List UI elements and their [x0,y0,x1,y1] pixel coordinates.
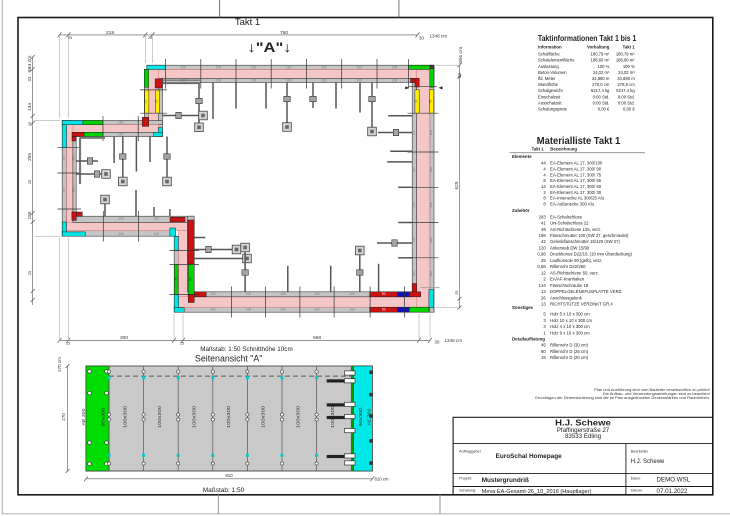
svg-text:EA-Element AL 17, 300/100: EA-Element AL 17, 300/100 [550,161,603,166]
svg-text:41: 41 [541,221,546,226]
svg-text:75: 75 [144,100,148,104]
svg-text:810: 810 [225,473,233,478]
svg-text:30: 30 [435,339,440,344]
svg-text:100: 100 [411,202,415,208]
svg-text:07.01.2022: 07.01.2022 [657,488,689,495]
svg-text:100: 100 [411,237,415,243]
svg-text:Projekt:: Projekt: [459,476,472,480]
svg-text:Zubehör: Zubehör [512,208,530,213]
svg-text:100: 100 [392,78,398,82]
svg-text:100: 100 [210,292,216,296]
svg-text:100x300: 100x300 [295,405,300,428]
svg-text:Grundlagen der Dimensionierung: Grundlagen der Dimensionierung sind die … [535,395,710,400]
svg-text:188,60 m²: 188,60 m² [616,58,635,63]
svg-text:Information: Information [538,44,562,49]
svg-text:100: 100 [251,65,257,69]
svg-text:100: 100 [286,78,292,82]
svg-text:75: 75 [414,100,418,104]
svg-text:100x300: 100x300 [192,405,197,428]
svg-text:33: 33 [457,73,462,78]
svg-text:Taktinformationen Takt 1 bis: Taktinformationen Takt 1 bis 1 [538,34,637,43]
svg-text:Datum:: Datum: [631,489,643,493]
svg-text:90x300: 90x300 [358,407,363,427]
svg-text:Holz 10 x 10 x 300 cm: Holz 10 x 10 x 300 cm [550,318,593,323]
svg-text:Maßstab: 1:50 Schnitthöhe 10: Maßstab: 1:50 Schnitthöhe 10cm [200,346,292,353]
svg-text:Schalgewicht: Schalgewicht [538,88,564,93]
svg-text:100: 100 [314,308,320,312]
svg-text:Meva EA-Gesamt-26_10_2016 (Hau: Meva EA-Gesamt-26_10_2016 (Hauptlager) [482,489,592,495]
svg-text:20: 20 [148,36,152,40]
svg-text:100: 100 [349,308,355,312]
svg-text:100: 100 [314,292,320,296]
svg-text:Anschlussgelenk: Anschlussgelenk [550,295,583,300]
svg-text:Rillenrohr D (30 cm): Rillenrohr D (30 cm) [550,343,589,348]
svg-text:50: 50 [188,277,192,281]
svg-text:Ausschalzeit: Ausschalzeit [538,100,562,105]
svg-text:Flanschschraube 18: Flanschschraube 18 [550,283,589,288]
svg-text:188,60 m²: 188,60 m² [591,58,610,63]
svg-text:0:00 Std.: 0:00 Std. [618,100,635,105]
svg-text:Materialliste Takt 1: Materialliste Takt 1 [537,136,621,147]
svg-text:Mustergrundriß: Mustergrundriß [482,477,529,484]
svg-text:DEMO.WSL: DEMO.WSL [657,477,691,484]
svg-text:Rillenrohr D (25 cm): Rillenrohr D (25 cm) [550,349,589,354]
svg-text:50: 50 [382,308,386,312]
svg-text:EA-Element AL 17, 300/ 50: EA-Element AL 17, 300/ 50 [550,184,602,189]
svg-text:30: 30 [419,36,424,41]
svg-text:EA/AF-Kranhaken: EA/AF-Kranhaken [550,277,585,282]
svg-text:25: 25 [180,342,184,346]
svg-text:100: 100 [118,232,124,236]
svg-text:0,66: 0,66 [537,264,546,269]
svg-text:5217,4 kg: 5217,4 kg [616,88,635,93]
svg-text:684 cm: 684 cm [458,47,464,64]
svg-text:25: 25 [28,180,32,184]
svg-text:180,79 m²: 180,79 m² [591,52,610,57]
svg-text:300: 300 [120,335,128,341]
svg-text:100x300: 100x300 [261,405,266,428]
svg-text:Vorhaltung: Vorhaltung [587,44,610,49]
svg-text:EA-Innenecke AL 300/25 Alu: EA-Innenecke AL 300/25 Alu [550,196,605,201]
svg-text:134: 134 [539,283,547,288]
svg-text:0:00 Std.: 0:00 Std. [593,100,610,105]
svg-text:100: 100 [429,202,433,208]
svg-text:34,880 m: 34,880 m [617,76,635,81]
svg-text:EA-Element AL 17, 300/ 90: EA-Element AL 17, 300/ 90 [550,166,602,171]
svg-text:100: 100 [411,167,415,173]
svg-text:100: 100 [246,308,252,312]
svg-text:283: 283 [539,214,547,219]
svg-text:100: 100 [118,121,124,125]
svg-text:218: 218 [106,30,114,36]
svg-text:100x300: 100x300 [157,405,162,428]
svg-text:25: 25 [66,342,70,346]
svg-text:Schalelementfläche: Schalelementfläche [538,58,575,63]
svg-text:1348 cm: 1348 cm [430,33,448,39]
svg-text:100: 100 [72,187,76,193]
svg-text:Schalungspreis: Schalungspreis [538,107,567,112]
svg-text:AS-Richtschiene 125, verz.: AS-Richtschiene 125, verz. [550,227,601,232]
svg-text:Takt 1: Takt 1 [623,44,636,49]
svg-text:Datei:: Datei: [631,476,641,480]
svg-text:lfd. Meter: lfd. Meter [538,76,556,81]
svg-text:75: 75 [155,100,159,104]
svg-text:100: 100 [61,155,65,161]
svg-text:60: 60 [541,349,546,354]
svg-text:270,0 cm: 270,0 cm [592,82,610,87]
svg-text:45: 45 [541,343,546,348]
svg-text:Flanschmutter 100 (SW 27, gesc: Flanschmutter 100 (SW 27, geschmiedet) [550,233,629,238]
svg-text:24,02 m³: 24,02 m³ [593,70,610,75]
svg-text:0,00 €: 0,00 € [598,107,610,112]
svg-text:100 %: 100 % [623,64,635,69]
svg-text:AS-Richtschiene 50, verz.: AS-Richtschiene 50, verz. [550,270,599,275]
svg-text:Takt 1: Takt 1 [235,17,260,28]
svg-text:Holz 4 x 10 x 300 cm: Holz 4 x 10 x 300 cm [550,324,590,329]
svg-text:195: 195 [27,211,33,219]
svg-text:26: 26 [541,295,546,300]
svg-text:629: 629 [454,181,460,189]
svg-text:100x300: 100x300 [226,405,231,428]
svg-text:100: 100 [357,65,363,69]
svg-text:255: 255 [27,153,33,161]
svg-text:100: 100 [154,216,160,220]
svg-text:Takt 1: Takt 1 [532,147,545,152]
svg-text:100: 100 [429,237,433,243]
svg-text:95x300: 95x300 [101,407,106,427]
svg-text:0,96: 0,96 [537,252,546,257]
svg-text:100: 100 [216,65,222,69]
svg-text:83533 Edling: 83533 Edling [565,433,602,440]
svg-text:100: 100 [246,292,252,296]
svg-text:Druckkonus D22/10, (10 mm Über: Druckkonus D22/10, (10 mm Überdeckung) [550,252,633,257]
svg-text:100: 100 [216,78,222,82]
svg-text:0:00 Std.: 0:00 Std. [618,94,635,99]
svg-text:50: 50 [173,277,177,281]
svg-text:Elemente: Elemente [512,154,532,159]
svg-text:270 cm: 270 cm [57,357,62,372]
svg-text:EA-Element AL 17, 300/ 55: EA-Element AL 17, 300/ 55 [550,178,602,183]
svg-text:25: 25 [541,258,546,263]
svg-text:0,00 €: 0,00 € [623,107,635,112]
svg-text:Holz 9 x 10 x 300 cm: Holz 9 x 10 x 300 cm [550,331,590,336]
svg-text:Detailauflistung: Detailauflistung [512,336,545,341]
svg-text:75: 75 [429,100,433,104]
svg-text:AE 300: AE 300 [81,408,86,425]
svg-text:278,9 cm: 278,9 cm [617,82,635,87]
svg-text:13: 13 [541,302,546,307]
svg-text:44: 44 [541,161,546,166]
svg-text:100: 100 [154,232,160,236]
svg-text:Rillenrohr D22/260: Rillenrohr D22/260 [550,264,586,269]
svg-text:Schalung:: Schalung: [459,489,476,493]
svg-text:810 cm: 810 cm [375,476,390,481]
svg-text:120: 120 [539,245,547,250]
svg-text:0:00 Std.: 0:00 Std. [593,94,610,99]
svg-text:EA-Schalschloss: EA-Schalschloss [550,214,582,219]
svg-text:100: 100 [321,78,327,82]
svg-text:15: 15 [541,355,546,360]
svg-text:198: 198 [539,233,547,238]
svg-text:RICHTSTÜTZE VERZINKT GR.: RICHTSTÜTZE VERZINKT GR.4 [550,302,613,307]
svg-text:49: 49 [541,227,546,232]
svg-text:668: 668 [313,335,321,341]
svg-text:EA-Außenecke 300 Alu: EA-Außenecke 300 Alu [550,202,595,207]
svg-text:Rillenrohr D (20 cm): Rillenrohr D (20 cm) [550,355,589,360]
svg-text:Auftraggeber: Auftraggeber [459,449,482,453]
svg-text:100x300: 100x300 [122,405,127,428]
svg-text:Seitenansicht "A": Seitenansicht "A" [195,354,262,364]
svg-text:760: 760 [280,30,288,36]
svg-text:5217,4 kg: 5217,4 kg [591,88,610,93]
svg-text:100: 100 [251,78,257,82]
svg-text:100: 100 [72,155,76,161]
svg-text:H.J. Schewe: H.J. Schewe [631,459,665,465]
svg-text:EuroSchal Homepage: EuroSchal Homepage [496,453,562,460]
svg-text:1348 cm: 1348 cm [445,338,463,344]
svg-text:Einschalzeit: Einschalzeit [538,94,561,99]
svg-text:Bezeichnung: Bezeichnung [550,147,577,152]
svg-text:14: 14 [541,184,546,189]
svg-text:100: 100 [321,65,327,69]
svg-text:100: 100 [411,271,415,277]
svg-text:100: 100 [349,292,355,296]
svg-text:24,02 m³: 24,02 m³ [618,70,635,75]
svg-text:100: 100 [61,187,65,193]
svg-text:34,880 m: 34,880 m [592,76,610,81]
svg-text:100: 100 [118,216,124,220]
svg-text:Beton-Volumen: Beton-Volumen [538,70,567,75]
svg-text:33: 33 [27,76,32,81]
svg-text:25: 25 [28,271,32,275]
svg-text:25: 25 [455,291,459,295]
svg-text:100: 100 [429,271,433,277]
svg-text:684 cm: 684 cm [27,55,33,72]
svg-text:100: 100 [280,292,286,296]
svg-text:100: 100 [429,167,433,173]
svg-text:134: 134 [27,103,33,111]
svg-text:50: 50 [382,292,386,296]
svg-text:Schalfläche: Schalfläche [538,52,560,57]
svg-text:Wandhöhe: Wandhöhe [538,82,559,87]
svg-text:100: 100 [392,65,398,69]
svg-text:100: 100 [210,308,216,312]
svg-text:DOPPELGELENKFUSPLATTE VERZ.: DOPPELGELENKFUSPLATTE VERZ. [550,289,622,294]
svg-text:100: 100 [180,65,186,69]
svg-text:100: 100 [429,130,433,136]
svg-text:180,79 m²: 180,79 m² [616,52,635,57]
svg-text:100: 100 [280,308,286,312]
svg-text:Maßstab: 1:50: Maßstab: 1:50 [203,487,245,494]
svg-text:20: 20 [28,122,32,126]
svg-text:EA-Element AL 17, 300/ 75: EA-Element AL 17, 300/ 75 [550,172,602,177]
svg-text:100 %: 100 % [598,64,610,69]
svg-text:Holz 5 x 10 x 300 cm: Holz 5 x 10 x 300 cm [550,312,590,317]
svg-text:270: 270 [61,413,66,421]
svg-text:EA-Element AL 17, 300/ 30: EA-Element AL 17, 300/ 30 [550,190,602,195]
svg-text:↓"A"↓: ↓"A"↓ [248,39,292,55]
svg-text:Sonstiges: Sonstiges [512,305,534,310]
svg-text:Auslastung: Auslastung [538,64,559,69]
svg-text:Uni-Schalschloss 22: Uni-Schalschloss 22 [550,221,589,226]
svg-text:Ankerstab DW 15/90: Ankerstab DW 15/90 [550,245,590,250]
svg-text:100: 100 [357,78,363,82]
svg-text:Laufkonsole 90 (gelb), verz.: Laufkonsole 90 (gelb), verz. [550,258,602,263]
svg-text:13: 13 [541,289,546,294]
svg-text:42: 42 [541,239,546,244]
svg-text:Bearbeiter: Bearbeiter [631,449,649,453]
svg-text:100: 100 [118,132,124,136]
svg-text:100: 100 [286,65,292,69]
svg-text:12: 12 [541,270,546,275]
svg-text:Gelenkflanschmutter 15/120 (SW: Gelenkflanschmutter 15/120 (SW 27) [550,239,621,244]
